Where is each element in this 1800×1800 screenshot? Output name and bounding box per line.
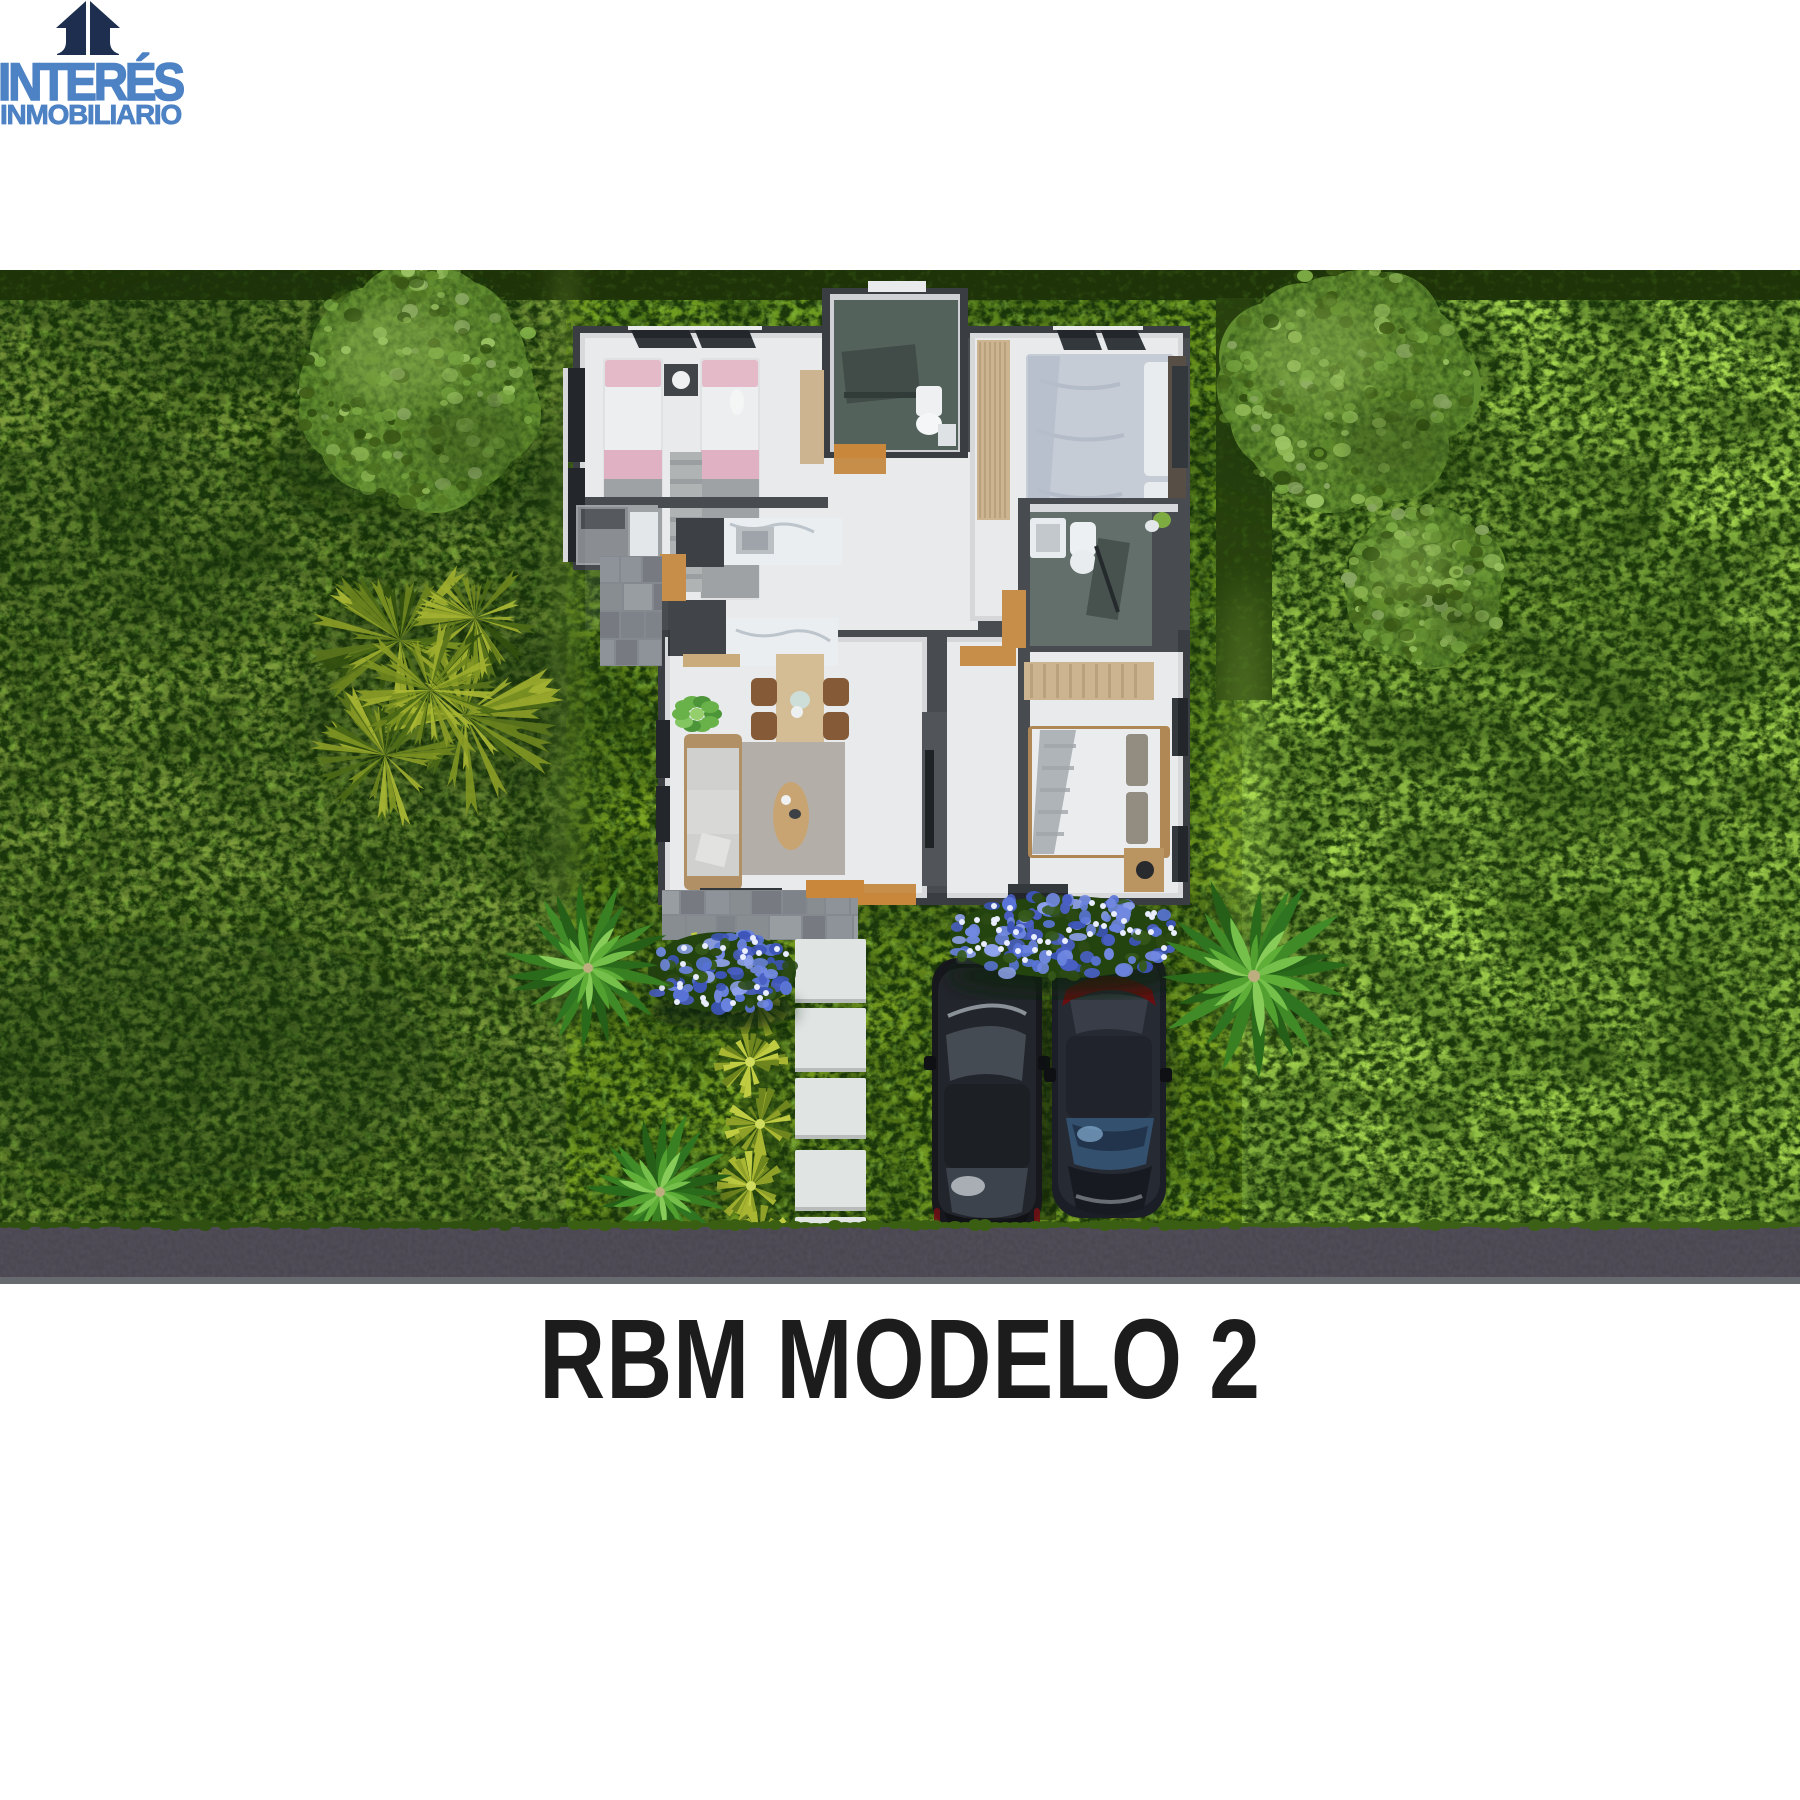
svg-text:INMOBILIARIO: INMOBILIARIO	[0, 99, 182, 130]
